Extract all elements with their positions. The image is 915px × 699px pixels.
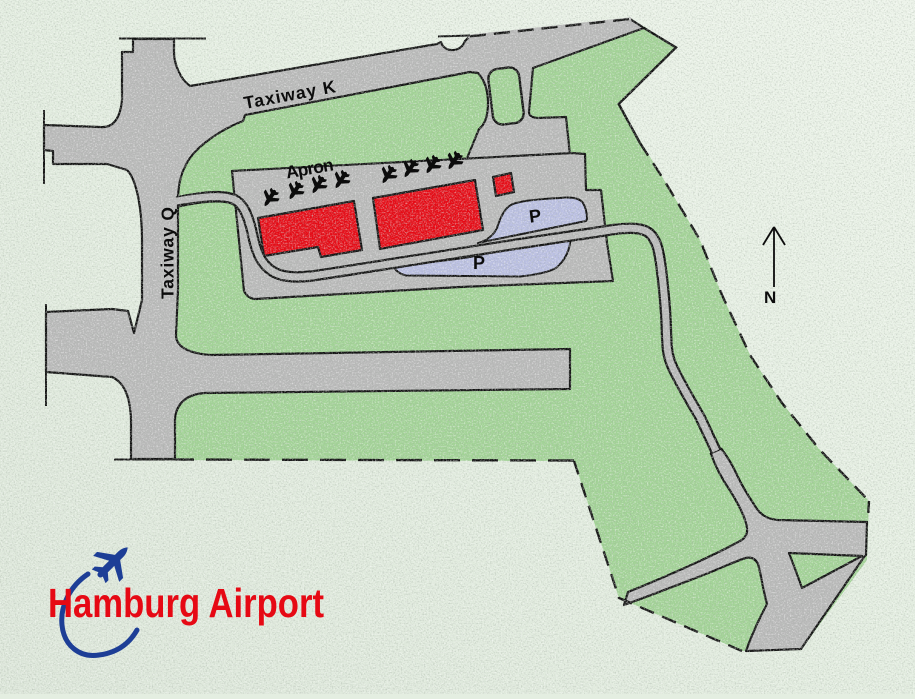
svg-text:Taxiway Q: Taxiway Q	[158, 207, 178, 299]
svg-text:N: N	[764, 288, 776, 307]
svg-text:Hamburg Airport: Hamburg Airport	[48, 580, 324, 626]
svg-text:P: P	[473, 253, 485, 273]
svg-text:P: P	[528, 205, 542, 226]
